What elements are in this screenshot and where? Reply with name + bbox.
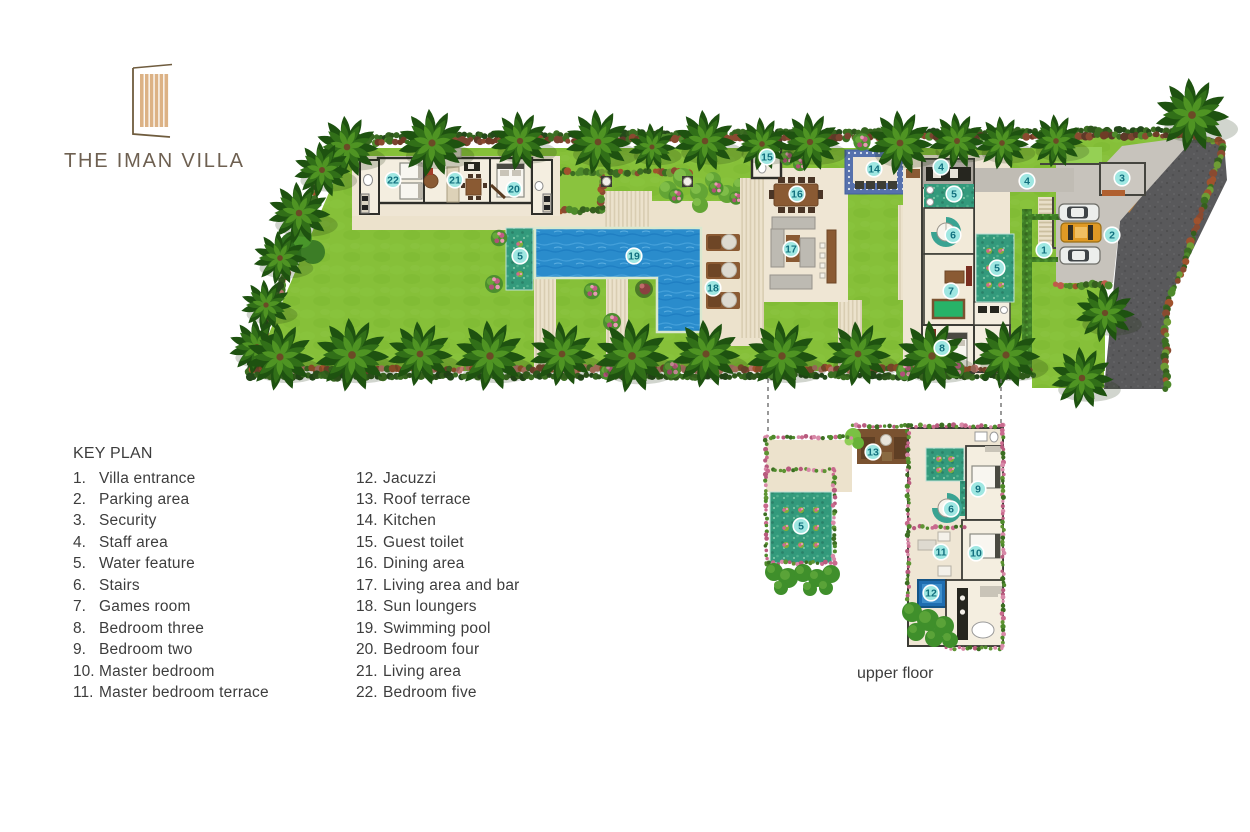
svg-text:17: 17 (785, 244, 797, 256)
svg-text:5: 5 (951, 189, 957, 201)
svg-text:12: 12 (925, 588, 937, 600)
svg-text:13: 13 (867, 447, 879, 459)
svg-text:2: 2 (1109, 230, 1115, 242)
svg-text:22: 22 (387, 175, 399, 187)
svg-text:19: 19 (628, 251, 640, 263)
svg-text:4: 4 (938, 162, 944, 174)
svg-text:15: 15 (761, 152, 773, 164)
svg-text:3: 3 (1119, 173, 1125, 185)
svg-text:16: 16 (791, 189, 803, 201)
svg-text:20: 20 (508, 184, 520, 196)
svg-text:5: 5 (517, 251, 523, 263)
svg-text:11: 11 (935, 547, 946, 559)
svg-text:6: 6 (948, 504, 954, 516)
svg-text:7: 7 (948, 286, 954, 298)
svg-text:10: 10 (970, 548, 982, 560)
svg-text:18: 18 (707, 283, 719, 295)
svg-text:9: 9 (975, 484, 981, 496)
svg-text:1: 1 (1041, 245, 1047, 257)
svg-text:8: 8 (939, 343, 945, 355)
svg-text:5: 5 (994, 263, 1000, 275)
svg-text:5: 5 (798, 521, 804, 533)
svg-text:6: 6 (950, 230, 956, 242)
svg-text:4: 4 (1024, 176, 1030, 188)
svg-text:21: 21 (449, 175, 461, 187)
svg-text:14: 14 (868, 164, 880, 176)
